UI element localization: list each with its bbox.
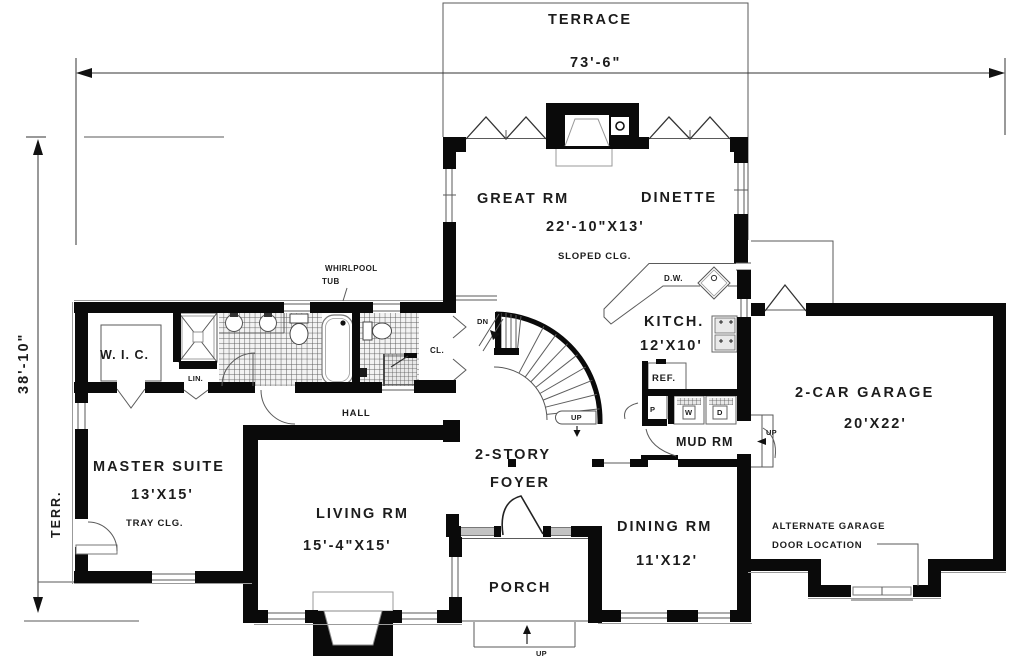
svg-text:FOYER: FOYER bbox=[490, 475, 550, 491]
svg-text:22'-10"X13': 22'-10"X13' bbox=[546, 219, 645, 235]
svg-text:D.W.: D.W. bbox=[664, 274, 683, 283]
svg-text:38'-10": 38'-10" bbox=[16, 333, 32, 394]
svg-text:LIN.: LIN. bbox=[188, 374, 203, 383]
svg-text:DOOR LOCATION: DOOR LOCATION bbox=[772, 540, 862, 551]
svg-text:15'-4"X15': 15'-4"X15' bbox=[303, 538, 392, 554]
svg-text:2-STORY: 2-STORY bbox=[475, 447, 551, 463]
svg-text:GREAT RM: GREAT RM bbox=[477, 191, 569, 207]
svg-text:LIVING RM: LIVING RM bbox=[316, 506, 409, 522]
svg-text:11'X12': 11'X12' bbox=[636, 553, 698, 569]
svg-text:UP: UP bbox=[536, 649, 547, 658]
svg-text:MUD RM: MUD RM bbox=[676, 435, 733, 449]
svg-text:20'X22': 20'X22' bbox=[844, 416, 907, 432]
svg-text:W. I. C.: W. I. C. bbox=[100, 348, 149, 362]
svg-text:73'-6": 73'-6" bbox=[570, 55, 621, 71]
svg-text:P: P bbox=[650, 405, 655, 414]
svg-text:KITCH.: KITCH. bbox=[644, 314, 704, 330]
svg-text:ALTERNATE GARAGE: ALTERNATE GARAGE bbox=[772, 521, 885, 532]
svg-text:HALL: HALL bbox=[342, 408, 371, 419]
svg-text:W: W bbox=[685, 408, 693, 417]
svg-text:UP: UP bbox=[571, 413, 582, 422]
svg-text:DINING RM: DINING RM bbox=[617, 519, 712, 535]
svg-text:2-CAR GARAGE: 2-CAR GARAGE bbox=[795, 385, 935, 401]
svg-text:13'X15': 13'X15' bbox=[131, 487, 194, 503]
svg-text:PORCH: PORCH bbox=[489, 580, 551, 596]
svg-text:UP: UP bbox=[766, 428, 777, 437]
svg-text:TERRACE: TERRACE bbox=[548, 12, 632, 28]
svg-text:DN: DN bbox=[477, 317, 488, 326]
svg-text:TUB: TUB bbox=[322, 277, 340, 286]
svg-text:TERR.: TERR. bbox=[49, 491, 63, 539]
svg-text:CL.: CL. bbox=[430, 346, 444, 355]
svg-text:SLOPED CLG.: SLOPED CLG. bbox=[558, 251, 631, 262]
svg-text:MASTER SUITE: MASTER SUITE bbox=[93, 459, 225, 475]
svg-text:REF.: REF. bbox=[652, 373, 676, 384]
svg-text:D: D bbox=[717, 408, 723, 417]
svg-text:12'X10': 12'X10' bbox=[640, 338, 703, 354]
svg-text:TRAY CLG.: TRAY CLG. bbox=[126, 518, 183, 529]
svg-text:WHIRLPOOL: WHIRLPOOL bbox=[325, 264, 377, 273]
svg-text:DINETTE: DINETTE bbox=[641, 190, 717, 206]
